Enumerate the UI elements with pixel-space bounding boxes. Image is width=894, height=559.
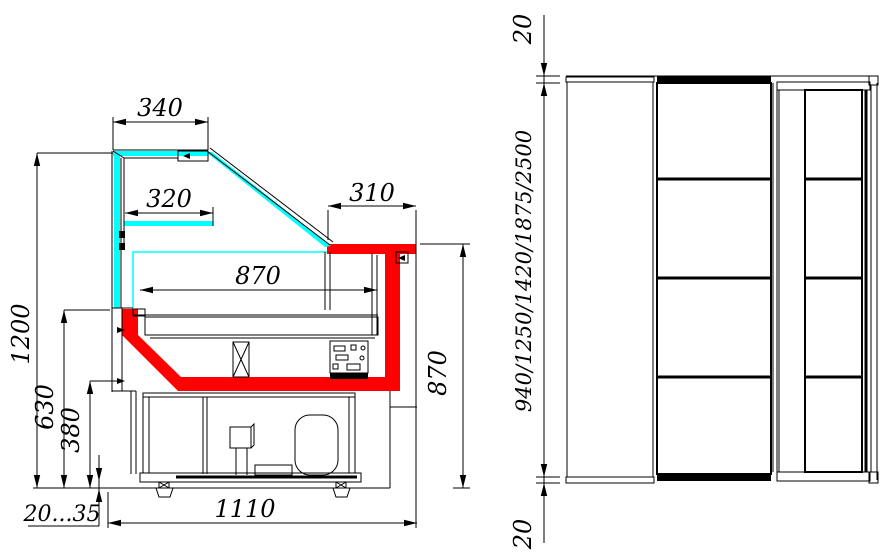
- front-inclined-glass: [206, 152, 331, 247]
- control-unit: [330, 341, 368, 379]
- arrow: [34, 475, 40, 488]
- arrow: [61, 475, 67, 488]
- arrow: [541, 83, 547, 96]
- dim-front-height-wrap: 870: [424, 350, 452, 396]
- dim-canopy-width: 340: [137, 94, 183, 122]
- machinery-compartment: [140, 393, 361, 497]
- arrow: [195, 119, 208, 125]
- dim-shelf-width: 320: [146, 185, 192, 213]
- front-glass-outer-edge: [210, 148, 333, 242]
- arrow: [541, 483, 547, 496]
- technical-drawing-page: 340 320 310 870 1200: [0, 0, 894, 559]
- control-knob-2: [360, 356, 364, 360]
- arrow: [328, 203, 341, 209]
- arrow: [460, 475, 466, 488]
- canopy-side-strip: [779, 90, 805, 472]
- dim-overall-height-wrap: 1200: [7, 303, 35, 364]
- control-slot-5: [347, 364, 360, 370]
- counter-bottom-cap: [566, 477, 654, 483]
- dim-length-options: 940/1250/1420/1875/2500: [512, 130, 536, 412]
- arrow: [108, 520, 121, 526]
- control-slot-2: [351, 345, 356, 350]
- arrow: [61, 310, 67, 323]
- glass-top-rail: [657, 76, 771, 83]
- plan-view: 20 940/1250/1420/1875/2500 20: [509, 14, 878, 551]
- canopy-top-cap: [777, 82, 870, 90]
- counter-top-cap: [566, 77, 654, 82]
- dim-base-height: 380: [57, 407, 85, 453]
- arrow: [460, 244, 466, 257]
- dim-front-height: 870: [424, 350, 452, 396]
- top-glass-canopy: [113, 151, 208, 156]
- red-diagonal-band: [122, 335, 200, 391]
- counter-body: [567, 82, 653, 477]
- front-glass-inner-edge: [207, 151, 330, 245]
- control-slot-1: [334, 346, 345, 351]
- dim-counter-height-wrap: 630: [31, 384, 59, 430]
- dim-bottom-overhang-wrap: 20: [509, 519, 537, 551]
- glass-panels: [113, 151, 331, 308]
- plan-front-glass-section: [657, 76, 771, 481]
- foot-right-pad: [333, 488, 350, 497]
- plan-canopy-section: [773, 76, 878, 483]
- arrow: [96, 468, 102, 481]
- shelf-bracket-upper: [119, 231, 125, 238]
- dim-base-width: 1110: [214, 495, 275, 523]
- dim-counter-height: 630: [31, 384, 59, 430]
- control-unit-base: [330, 373, 368, 379]
- dim-length-options-wrap: 940/1250/1420/1875/2500: [512, 130, 536, 412]
- dim-top-overhang-wrap: 20: [509, 14, 537, 46]
- arrow: [364, 287, 377, 293]
- foot-right: [333, 482, 350, 497]
- dim-bottom-overhang: 20: [509, 519, 537, 551]
- side-section-view: 340 320 310 870 1200: [7, 94, 470, 528]
- canopy-bottom-cap: [777, 472, 870, 481]
- arrow: [140, 287, 153, 293]
- arrow: [403, 203, 416, 209]
- canopy-glass-field: [805, 90, 862, 472]
- foot-left-pad: [156, 488, 173, 497]
- foot-left: [156, 482, 173, 497]
- plan-view-dimensions: 20 940/1250/1420/1875/2500 20: [509, 14, 560, 551]
- shelf-bracket-lower: [119, 243, 125, 250]
- dim-base-height-wrap: 380: [57, 407, 85, 453]
- display-well-liner: [133, 252, 327, 308]
- red-bottom-band: [178, 377, 400, 391]
- control-knob-1: [361, 346, 365, 350]
- arrow: [541, 464, 547, 477]
- showcase-technical-drawing: 340 320 310 870 1200: [0, 0, 894, 559]
- display-deck: [145, 317, 378, 335]
- compressor: [295, 415, 338, 475]
- dim-foot-adjustment: 20...35: [23, 502, 101, 527]
- dim-top-overhang: 20: [509, 14, 537, 46]
- dim-well-width: 870: [235, 262, 281, 290]
- arrow: [541, 63, 547, 76]
- arrow: [87, 475, 93, 488]
- arrow: [200, 210, 213, 216]
- arrow: [125, 210, 138, 216]
- glass-bottom-rail: [657, 474, 771, 481]
- glass-shelf: [124, 221, 213, 226]
- dim-overall-height: 1200: [7, 303, 35, 364]
- compartment-housing: [143, 393, 355, 473]
- arrow: [96, 489, 102, 502]
- red-front-upper-band: [122, 309, 138, 336]
- starter-box: [230, 427, 251, 448]
- control-slot-3: [336, 355, 348, 360]
- dim-worktop-width: 310: [349, 179, 395, 207]
- arrow: [113, 119, 126, 125]
- control-slot-4: [333, 364, 338, 369]
- arrow: [404, 520, 417, 526]
- plan-rear-counter: [566, 77, 654, 483]
- arrow: [34, 153, 40, 166]
- side-view-dimensions: 340 320 310 870 1200: [7, 94, 470, 528]
- red-front-column: [385, 254, 400, 379]
- arrow: [87, 381, 93, 394]
